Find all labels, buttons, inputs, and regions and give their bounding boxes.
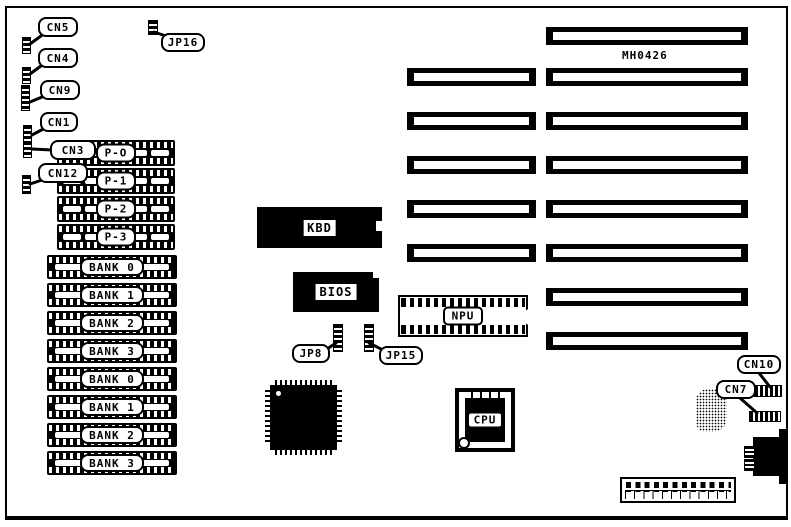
cpu-socket: CPU: [455, 388, 515, 452]
label-p0: P-O: [96, 144, 136, 163]
callout-cn12: CN12: [38, 163, 88, 183]
callout-jp15: JP15: [379, 346, 423, 365]
label-bank0b: BANK 0: [80, 370, 144, 388]
expansion-slot-short: [407, 112, 536, 130]
label-p3: P-3: [96, 228, 136, 247]
label-bank3b: BANK 3: [80, 454, 144, 472]
callout-jp16: JP16: [161, 33, 205, 52]
memory-row-bank: BANK 2: [47, 311, 177, 335]
callout-cn1: CN1: [40, 112, 78, 132]
memory-row-bank: BANK 1: [47, 395, 177, 419]
cn5-connector-icon: [22, 37, 31, 54]
callout-cn5: CN5: [38, 17, 78, 37]
npu-label: NPU: [443, 307, 483, 326]
expansion-slot-long: [546, 244, 748, 262]
bios-chip-label: BIOS: [316, 284, 357, 300]
callout-cn3: CN3: [50, 140, 96, 160]
jp8-jumper-icon: [333, 324, 343, 352]
expansion-slot-long: [546, 156, 748, 174]
label-p1: P-1: [96, 172, 136, 191]
keyboard-din-connector-edge: [779, 429, 788, 484]
memory-row-bank: BANK 0: [47, 367, 177, 391]
label-bank3a: BANK 3: [80, 342, 144, 360]
label-bank0a: BANK 0: [80, 258, 144, 276]
cn9-connector-icon: [21, 85, 30, 111]
expansion-slot-short: [407, 68, 536, 86]
label-bank1b: BANK 1: [80, 398, 144, 416]
cn4-connector-icon: [22, 67, 31, 84]
bios-chip: BIOS: [293, 272, 379, 312]
callout-cn4: CN4: [38, 48, 78, 68]
pin1-dot: [276, 391, 281, 396]
npu-socket: NPU: [398, 295, 528, 337]
expansion-slot-short: [407, 200, 536, 218]
expansion-slot-short: [407, 244, 536, 262]
memory-row-bank: BANK 0: [47, 255, 177, 279]
part-number: MH0426: [622, 49, 668, 62]
jp16-jumper-icon: [148, 20, 158, 35]
expansion-slot-long: [546, 200, 748, 218]
motherboard-diagram: CN5 CN4 CN9 CN1 CN3 CN12 JP16 JP8 JP15 C…: [0, 0, 791, 527]
memory-row-bank: BANK 1: [47, 283, 177, 307]
cn3-connector-icon: [23, 141, 32, 158]
expansion-slot-long: [546, 68, 748, 86]
cn7-connector-icon: [749, 411, 781, 422]
power-connector: [620, 477, 736, 503]
label-bank2a: BANK 2: [80, 314, 144, 332]
memory-row-p2: P-2: [57, 196, 175, 222]
label-bank2b: BANK 2: [80, 426, 144, 444]
expansion-slot-long: [546, 288, 748, 306]
label-bank1a: BANK 1: [80, 286, 144, 304]
callout-jp8: JP8: [292, 344, 330, 363]
expansion-slot-short: [407, 156, 536, 174]
cn12-connector-icon: [22, 175, 31, 194]
expansion-slot-long: [546, 332, 748, 350]
expansion-slot-long: [546, 27, 748, 45]
callout-cn7: CN7: [716, 380, 756, 399]
memory-row-bank: BANK 2: [47, 423, 177, 447]
kbd-connector-tab: [744, 446, 755, 458]
qfp-chip: [270, 385, 337, 450]
kbd-chip-label: KBD: [303, 220, 336, 236]
kbd-connector-tab: [744, 459, 755, 471]
cn10-connector-icon: [754, 385, 782, 397]
memory-row-p3: P-3: [57, 224, 175, 250]
cpu-label: CPU: [467, 412, 503, 429]
cn1-connector-icon: [23, 125, 32, 142]
callout-cn10: CN10: [737, 355, 781, 374]
callout-cn9: CN9: [40, 80, 80, 100]
label-p2: P-2: [96, 200, 136, 219]
expansion-slot-long: [546, 112, 748, 130]
memory-row-bank: BANK 3: [47, 339, 177, 363]
cpu-pin1-indicator: [458, 437, 470, 449]
jp15-jumper-icon: [364, 324, 374, 352]
kbd-chip: KBD: [257, 207, 382, 248]
memory-row-bank: BANK 3: [47, 451, 177, 475]
